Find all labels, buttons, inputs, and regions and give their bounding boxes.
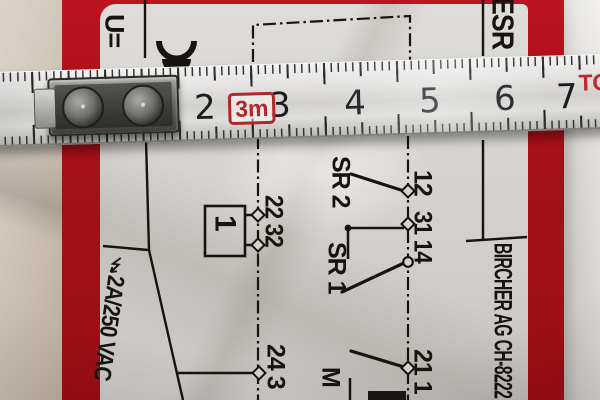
component-box-label: 1 <box>209 215 241 231</box>
ruler-mark-7: 7 <box>555 77 578 118</box>
voltage-symbol-label: U= <box>100 14 128 47</box>
ruler-mark-5: 5 <box>418 81 441 122</box>
manufacturer-label: BIRCHER AG CH-8222 <box>489 243 515 398</box>
clip-rivet-right <box>121 84 164 127</box>
terminal-label-22-32: 22 32 <box>260 195 286 247</box>
clip-inner-panel <box>54 82 172 129</box>
ruler-mark-2: 2 <box>194 88 217 129</box>
wiring-lines <box>176 215 404 400</box>
ruler-mark-3: 3 <box>269 85 292 126</box>
terminal-label-24-3: 24 3 <box>262 344 288 389</box>
switching-capacity-icon <box>108 256 126 277</box>
photo-stage: U= ESR SR 2 SR 1 12 31 14 22 32 1 24 3 M… <box>0 0 600 400</box>
ruler-length-badge: 3m <box>228 92 276 125</box>
sr1-switch-label: SR 1 <box>323 242 349 294</box>
device-type-label: ESR <box>486 0 519 49</box>
clip-rivet-left <box>61 86 104 129</box>
ruler-slider-clip <box>47 75 180 137</box>
ruler-mark-6: 6 <box>493 79 516 120</box>
ruler-brand-text: TO <box>578 69 600 97</box>
sr2-switch-label: SR 2 <box>327 156 353 208</box>
terminal-label-31-14: 31 14 <box>409 211 435 263</box>
component-box <box>205 206 245 256</box>
bottom-edge-block <box>368 391 406 400</box>
ruler-mark-4: 4 <box>344 83 367 124</box>
clip-tab <box>34 88 57 129</box>
junction-dot <box>345 225 352 232</box>
motor-label: M <box>317 367 343 387</box>
terminal-label-21-1: 21 1 <box>409 349 435 394</box>
terminal-label-12: 12 <box>409 170 435 196</box>
